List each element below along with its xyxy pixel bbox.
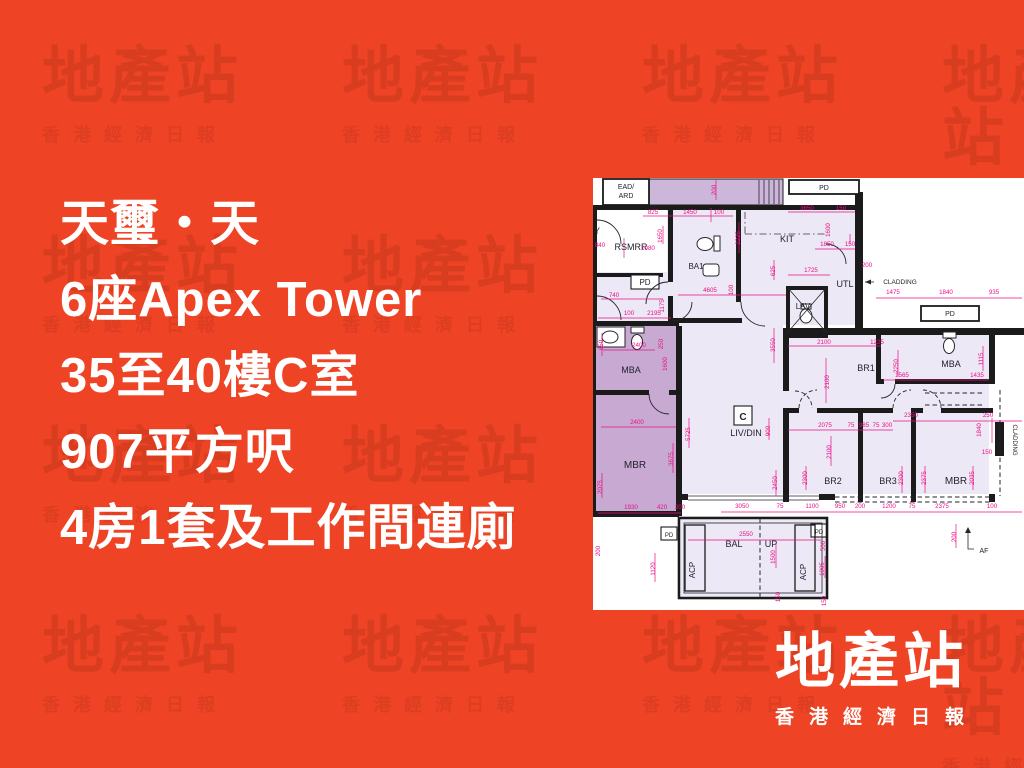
dimension-label: 100 <box>624 310 635 317</box>
watermark-logo: 地產站 <box>42 616 243 678</box>
dimension-label: 3050 <box>735 503 749 510</box>
title-line-layout: 4房1套及工作間連廁 <box>60 490 517 566</box>
title-line-area: 907平方呎 <box>60 414 517 490</box>
dimension-label: 75 <box>909 503 916 510</box>
dimension-label: 2035 <box>969 471 976 485</box>
dimension-label: 2100 <box>826 445 833 459</box>
room-label: BR3 <box>879 476 897 486</box>
watermark-subtext: 香港經濟日報 <box>342 121 543 147</box>
dimension-label: 1450 <box>683 209 697 216</box>
dimension-label: 2250 <box>893 359 900 373</box>
room-label: KIT <box>780 234 795 244</box>
dimension-label: 1435 <box>970 372 984 379</box>
dimension-label: 3550 <box>770 338 777 352</box>
dimension-label: 1650 <box>657 229 664 243</box>
poster: 地產站香港經濟日報地產站香港經濟日報地產站香港經濟日報地產站香港經濟日報地產站香… <box>0 0 1024 768</box>
dimension-label: 3675 <box>668 452 675 466</box>
dimension-label: 2075 <box>597 480 604 494</box>
dimension-label: 1200 <box>882 503 896 510</box>
dimension-label: 1850 <box>820 241 834 248</box>
dimension-label: 200 <box>675 504 686 511</box>
dimension-label: 3650 <box>800 205 814 212</box>
watermark-tile: 地產站香港經濟日報 <box>342 616 543 717</box>
dimension-label: 1600 <box>825 223 832 237</box>
room-label: LAV <box>796 302 811 311</box>
dimension-label: 2550 <box>739 531 753 538</box>
dimension-label: 100 <box>714 209 725 216</box>
room-label: PD <box>639 278 650 287</box>
watermark-logo: 地產站 <box>42 46 243 108</box>
dimension-label: 300 <box>882 422 893 429</box>
dimension-label: 840 <box>595 242 606 249</box>
room-label: PD <box>819 185 829 192</box>
dimension-label: 100 <box>987 503 998 510</box>
dimension-label: 75 <box>848 422 855 429</box>
room-label: LIV/DIN <box>730 428 762 438</box>
dimension-label: 420 <box>657 504 668 511</box>
dimension-label: 950 <box>835 503 846 510</box>
brand-logo-subtext: 香港經濟日報 <box>775 702 979 729</box>
room-label: PD <box>945 311 955 318</box>
dimension-label: 75 <box>873 422 880 429</box>
room-label: MBR <box>945 476 967 487</box>
dimension-label: 740 <box>609 292 620 299</box>
dimension-label: 1500 <box>770 550 777 564</box>
watermark-logo: 地產站 <box>942 46 1024 170</box>
dimension-label: 2075 <box>818 422 832 429</box>
floor-plan-drawing: EAD/ARDPDYRSMRRPDBA1KITUTLLAVCLADDINGMBA… <box>593 178 1024 610</box>
floor-plan: EAD/ARDPDYRSMRRPDBA1KITUTLLAVCLADDINGMBA… <box>593 178 1024 610</box>
room-label: PD <box>815 530 824 536</box>
dimension-label: 625 <box>770 265 777 276</box>
room-label: UTL <box>836 279 853 289</box>
dimension-label: 1475 <box>886 289 900 296</box>
dimension-label: 100 <box>728 284 735 295</box>
dimension-label: 2400 <box>632 342 646 349</box>
room-label: C <box>739 412 746 423</box>
watermark-tile: 地產站香港經濟日報 <box>42 616 243 717</box>
room-label: ARD <box>619 193 634 200</box>
dimension-label: 1930 <box>624 504 638 511</box>
dimension-label: 2350 <box>904 412 918 419</box>
room-label: BR2 <box>824 476 842 486</box>
dimension-label: 500 <box>820 540 827 551</box>
dimension-label: 2375 <box>935 503 949 510</box>
dimension-label: 150 <box>821 595 828 606</box>
dimension-label: 150 <box>775 591 782 602</box>
dimension-label: 1005 <box>819 562 826 576</box>
brand-logo-text: 地產站 <box>775 630 979 693</box>
dimension-label: 2400 <box>630 419 644 426</box>
room-label: BR1 <box>857 363 875 373</box>
dimension-label: 75 <box>777 503 784 510</box>
dimension-label: 4605 <box>703 287 717 294</box>
dimension-label: 1565 <box>895 372 909 379</box>
dimension-label: 2375 <box>921 471 928 485</box>
room-label: ACP <box>688 562 697 578</box>
dimension-label: 2450 <box>772 476 779 490</box>
room-label: BAL <box>725 539 742 549</box>
dimension-label: 200 <box>595 545 602 556</box>
dimension-label: 1120 <box>650 562 657 576</box>
dimension-label: 935 <box>989 289 1000 296</box>
room-label: ACP <box>799 564 808 580</box>
dimension-label: 825 <box>648 209 659 216</box>
room-label: EAD/ <box>618 184 634 191</box>
dimension-label: 150 <box>836 205 847 212</box>
dimension-label: 900 <box>765 425 772 436</box>
watermark-subtext: 香港經濟日報 <box>42 121 243 147</box>
watermark-tile: 地產站香港經濟日報 <box>42 46 243 147</box>
dimension-label: 200 <box>951 531 958 542</box>
dimension-label: 150 <box>982 449 993 456</box>
room-label: BA1 <box>688 262 704 271</box>
dimension-label: 2300 <box>802 471 809 485</box>
brand-logo: 地產站 香港經濟日報 <box>775 630 979 729</box>
dimension-label: 1080 <box>641 245 655 252</box>
dimension-label: 1725 <box>804 267 818 274</box>
watermark-tile: 地產站香港經濟日報 <box>342 46 543 147</box>
dimension-label: 2100 <box>817 339 831 346</box>
title-line-tower: 6座Apex Tower <box>60 262 517 338</box>
dimension-label: 1225 <box>870 339 884 346</box>
dimension-label: 650 <box>598 339 605 350</box>
watermark-subtext: 香港經濟日報 <box>342 691 543 717</box>
title-line-floor-unit: 35至40樓C室 <box>60 338 517 414</box>
watermark-logo: 地產站 <box>342 46 543 108</box>
dimension-label: 5725 <box>685 427 692 441</box>
watermark-logo: 地產站 <box>342 616 543 678</box>
watermark-subtext: 香港經濟日報 <box>42 691 243 717</box>
dimension-label: 250 <box>983 412 994 419</box>
dimension-label: 1115 <box>978 352 985 365</box>
room-label: MBR <box>624 460 646 471</box>
room-label: CLADDING <box>883 279 917 286</box>
watermark-subtext: 香港經濟日報 <box>642 121 843 147</box>
dimension-label: 2300 <box>898 471 905 485</box>
room-label: Y <box>594 226 600 236</box>
dimension-label: 250 <box>658 338 665 349</box>
dimension-label: 1100 <box>805 503 819 510</box>
room-label: CLADDING <box>1011 424 1017 455</box>
property-title: 天璽・天 6座Apex Tower 35至40樓C室 907平方呎 4房1套及工… <box>60 186 517 566</box>
dimension-label: 200 <box>855 503 866 510</box>
room-label: MBA <box>621 365 641 375</box>
room-label: PD <box>665 533 674 539</box>
dimension-label: 1840 <box>939 289 953 296</box>
dimension-label: 985 <box>859 422 870 429</box>
watermark-subtext: 香港經濟日報 <box>942 753 1024 768</box>
dimension-label: 1600 <box>662 357 669 371</box>
room-label: AF <box>980 548 989 555</box>
dimension-label: 200 <box>711 184 718 195</box>
room-label: UP <box>765 539 778 549</box>
dimension-label: 1840 <box>976 423 983 437</box>
watermark-logo: 地產站 <box>642 46 843 108</box>
room-label: MBA <box>941 359 961 369</box>
dimension-label: 200 <box>862 262 873 269</box>
dimension-label: 1175 <box>659 299 666 313</box>
dimension-label: 2225 <box>735 231 742 245</box>
watermark-tile: 地產站香港經濟日報 <box>642 46 843 147</box>
title-line-estate: 天璽・天 <box>60 186 517 262</box>
dimension-label: 150 <box>845 241 856 248</box>
dimension-label: 2100 <box>824 375 831 389</box>
